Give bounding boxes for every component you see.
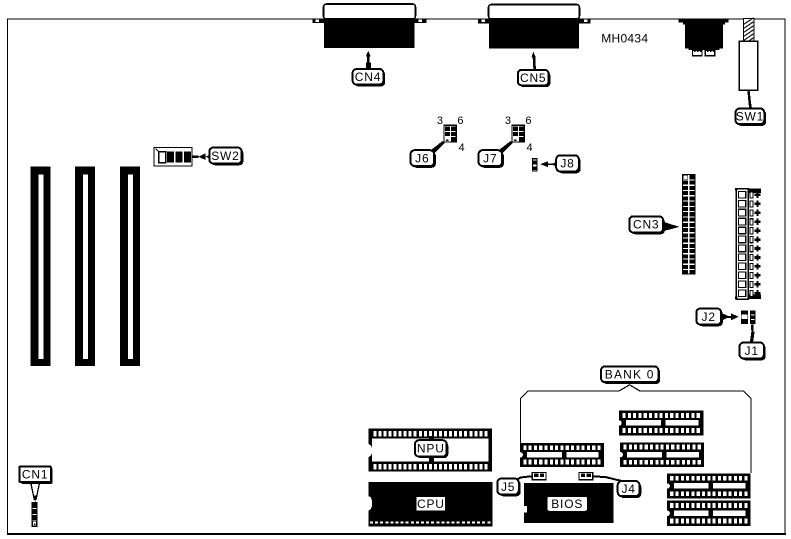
svg-text:MH0434: MH0434 xyxy=(601,32,648,46)
svg-text:3: 3 xyxy=(505,115,511,127)
svg-text:J7: J7 xyxy=(483,151,497,165)
svg-text:NPU: NPU xyxy=(417,442,445,456)
svg-text:BIOS: BIOS xyxy=(551,497,583,511)
svg-text:4: 4 xyxy=(527,142,533,154)
svg-text:6: 6 xyxy=(457,115,463,127)
svg-text:4: 4 xyxy=(459,142,465,154)
svg-text:J1: J1 xyxy=(745,344,759,358)
svg-text:J8: J8 xyxy=(560,157,574,171)
svg-text:J5: J5 xyxy=(501,480,515,494)
svg-text:SW2: SW2 xyxy=(211,149,239,163)
svg-text:CN1: CN1 xyxy=(22,468,48,482)
svg-text:3: 3 xyxy=(437,115,443,127)
svg-text:SW1: SW1 xyxy=(736,110,764,124)
svg-text:BANK 0: BANK 0 xyxy=(605,368,655,382)
svg-text:J2: J2 xyxy=(702,310,716,324)
svg-text:CN5: CN5 xyxy=(520,71,546,85)
svg-text:J4: J4 xyxy=(621,482,635,496)
svg-text:CN4: CN4 xyxy=(355,70,381,84)
svg-text:CN3: CN3 xyxy=(633,218,659,232)
svg-text:J6: J6 xyxy=(415,151,429,165)
svg-text:CPU: CPU xyxy=(417,497,445,511)
svg-text:6: 6 xyxy=(525,115,531,127)
